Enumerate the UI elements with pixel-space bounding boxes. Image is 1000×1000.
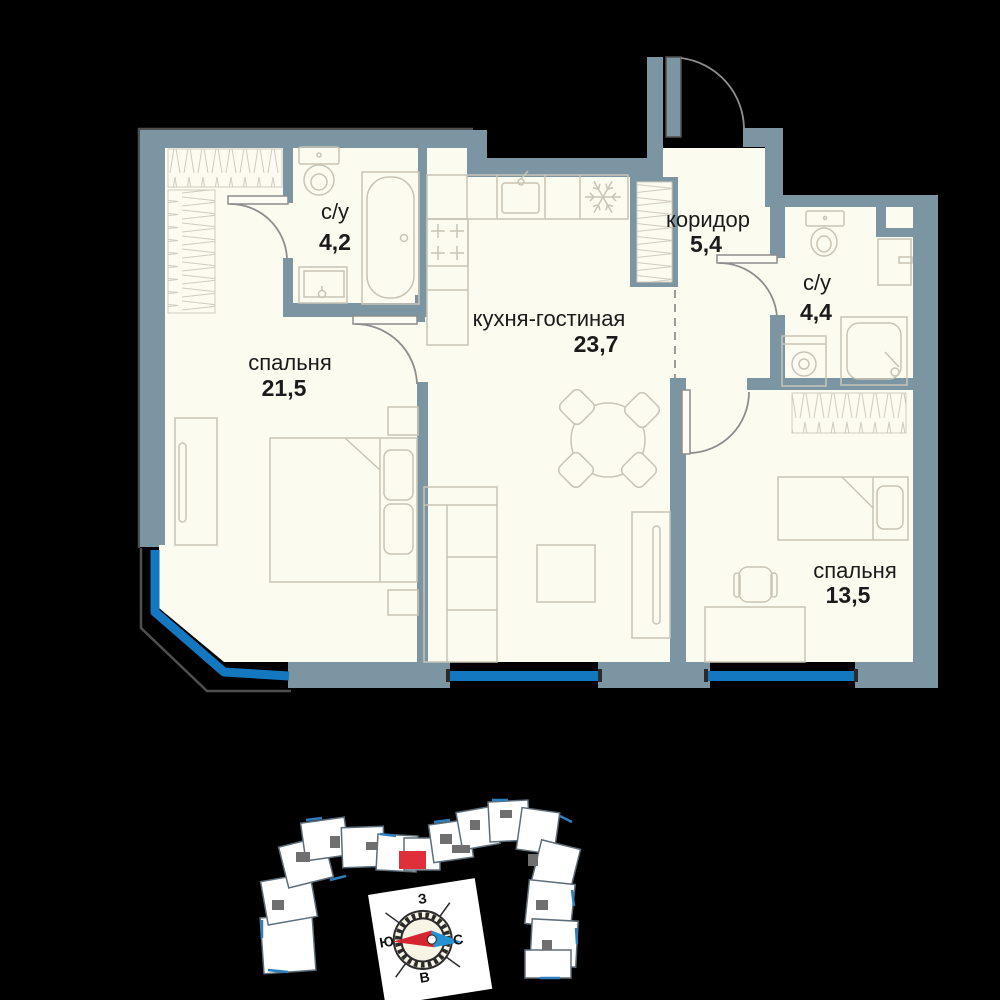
room-label-bathroom2: с/у xyxy=(803,270,831,295)
window xyxy=(448,671,601,681)
room-label-corridor: коридор xyxy=(666,207,750,232)
entrance-door-leaf xyxy=(666,57,681,137)
selected-unit[interactable] xyxy=(399,851,426,869)
door-leaf xyxy=(228,196,288,204)
room-area-bathroom1: 4,2 xyxy=(319,229,351,255)
room-label-bedroom2: спальня xyxy=(813,558,897,583)
room-area-corridor: 5,4 xyxy=(690,231,722,257)
window xyxy=(706,671,857,681)
plan-canvas: с/у 4,2 спальня 21,5 кухня-гостиная 23,7… xyxy=(0,0,1000,1000)
apartment-plan: с/у 4,2 спальня 21,5 кухня-гостиная 23,7… xyxy=(139,57,938,691)
room-label-kitchen: кухня-гостиная xyxy=(473,306,626,331)
door-leaf xyxy=(353,316,417,324)
compass: З Ю С В xyxy=(368,878,492,1000)
room-label-bathroom1: с/у xyxy=(321,199,349,224)
room-label-bedroom1: спальня xyxy=(248,350,332,375)
room-area-bedroom2: 13,5 xyxy=(826,582,871,608)
entrance-door-arc xyxy=(681,58,744,130)
closet-top xyxy=(168,149,282,187)
pillow-icon xyxy=(384,504,413,554)
pillow-icon xyxy=(877,486,903,529)
door-leaf xyxy=(682,390,690,454)
room-area-bathroom2: 4,4 xyxy=(800,299,832,325)
floorplan-page: с/у 4,2 спальня 21,5 кухня-гостиная 23,7… xyxy=(0,0,1000,1000)
room-area-bedroom1: 21,5 xyxy=(262,375,307,401)
corridor-wardrobe xyxy=(637,182,672,282)
bedroom2-wardrobe xyxy=(792,393,906,433)
pillow-icon xyxy=(384,450,413,500)
compass-south-label: Ю xyxy=(378,933,395,951)
door-leaf xyxy=(717,255,777,263)
room-area-kitchen: 23,7 xyxy=(574,331,619,357)
closet-left xyxy=(168,190,215,313)
